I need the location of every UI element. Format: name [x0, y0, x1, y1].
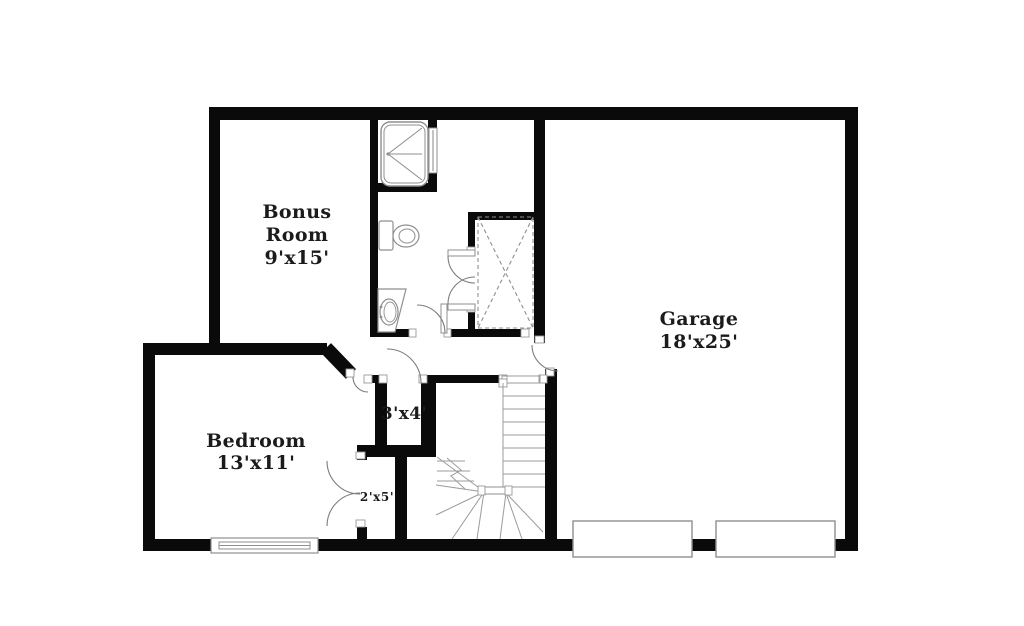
bedroom-label: Bedroom: [206, 430, 306, 452]
bonus-room-label-line2: Room: [266, 224, 329, 246]
staircase: [436, 376, 545, 539]
bedroom-dims: 13'x11': [217, 452, 296, 474]
bonus-room-dims: 9'x15': [264, 247, 329, 269]
door-swings: [327, 250, 558, 526]
wall-bedroom-left: [143, 343, 155, 551]
garage-door-right: [716, 521, 835, 557]
closet3x4-door-arc: [387, 349, 421, 383]
walls: [143, 107, 858, 551]
wall-bonus-left: [209, 107, 220, 355]
shower-glass-panel: [429, 128, 437, 173]
storage-door-leaf-bottom: [448, 304, 475, 310]
wall-outer-right: [845, 107, 858, 551]
storage-area-x: [478, 217, 533, 328]
stair-break-line: [447, 458, 465, 489]
garage-door-left: [573, 521, 692, 557]
closet2x5-door-arc-top: [327, 461, 360, 494]
wall-closet-divider: [357, 445, 436, 457]
shower-icon: [381, 122, 428, 186]
storage-door-leaf-top: [448, 250, 475, 256]
wall-storage-bottom: [468, 329, 528, 337]
bathroom-door-leaf: [441, 304, 447, 333]
stair-entry-threshold: [502, 376, 540, 383]
garage-dims: 18'x25': [660, 331, 739, 353]
bathroom-fixtures: [378, 122, 437, 332]
toilet-icon: [379, 221, 419, 250]
storage-door-arc-top: [448, 256, 475, 283]
garage-door-arc: [532, 345, 558, 371]
bedroom-window: [211, 538, 318, 553]
floorplan-svg: Bonus Room 9'x15' Garage 18'x25' Bedroom…: [0, 0, 1024, 626]
garage-label: Garage: [660, 308, 739, 330]
wall-garage-west: [534, 107, 545, 343]
bonus-room-label-line1: Bonus: [262, 201, 331, 223]
wall-outer-top: [209, 107, 858, 120]
sink-icon: [378, 289, 406, 332]
wall-closet2x5-east: [395, 457, 407, 540]
closet-2x5-dims: 2'x5': [360, 490, 394, 504]
closet2x5-door-arc-bottom: [327, 493, 360, 526]
wall-stair-top: [433, 375, 500, 383]
wall-stairwell-east: [545, 369, 557, 540]
wall-bedroom-right-stub-bottom: [357, 527, 367, 551]
wall-bath-west: [370, 120, 378, 337]
closet-3x4-dims: 3'x4': [381, 404, 427, 424]
wall-bedroom-top: [143, 343, 327, 355]
storage-door-arc-bottom: [448, 277, 475, 304]
floorplan-page: Bonus Room 9'x15' Garage 18'x25' Bedroom…: [0, 0, 1024, 626]
